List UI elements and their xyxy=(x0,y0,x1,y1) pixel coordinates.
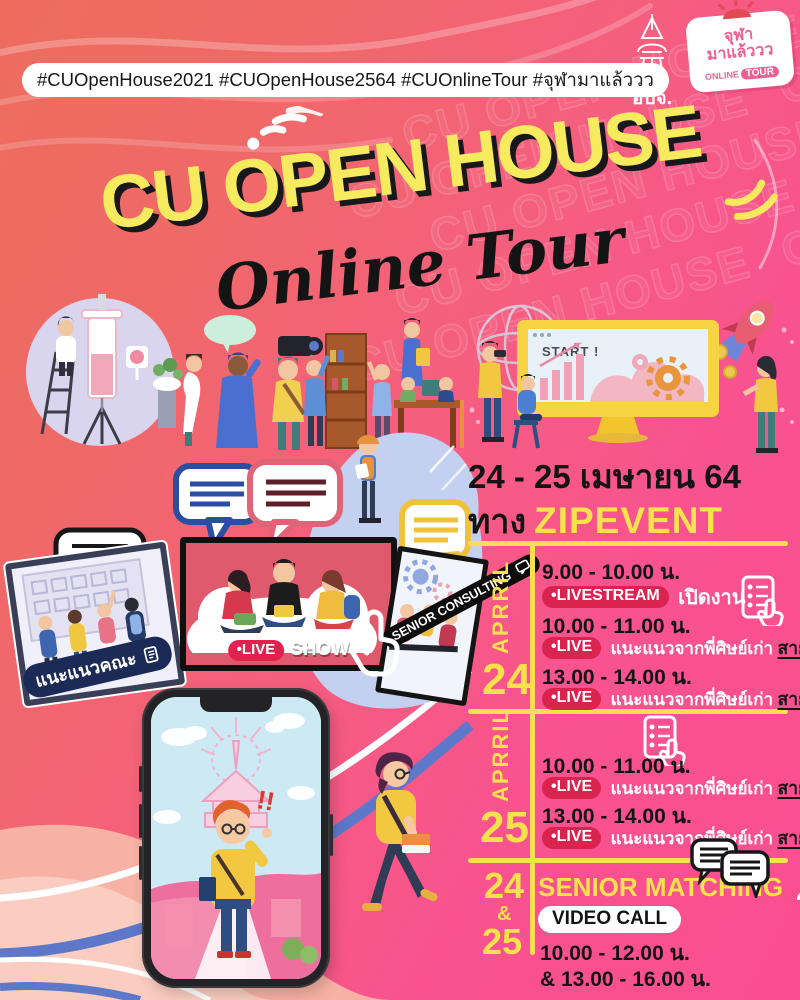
live-badge: •LIVE xyxy=(542,688,601,710)
stamp-online: ONLINE xyxy=(705,69,740,82)
day-number-25: 25 xyxy=(480,806,529,850)
live-badge: •LIVE xyxy=(542,777,601,799)
phone-button xyxy=(139,766,142,792)
desktop-monitor: START ! xyxy=(517,320,719,443)
event-channel: ทางZIPEVENT xyxy=(468,494,723,548)
checklist-hand-icon xyxy=(740,574,786,626)
live-badge: •LIVE xyxy=(542,827,601,849)
month-label-24: APRRIL xyxy=(488,562,514,654)
livestream-badge: •LIVESTREAM xyxy=(542,586,669,608)
schedule-entry: •LIVE แนะแนวจากพี่ศิษย์เก่า สายศิลป์ xyxy=(542,685,800,713)
entry-track: สายวิทย์ xyxy=(778,638,800,658)
matching-time-2: & 13.00 - 16.00 น. xyxy=(540,963,711,996)
stamp-tour: TOUR xyxy=(740,65,779,79)
monitor-screen-text: START ! xyxy=(542,344,599,359)
gesturing-woman-figure xyxy=(744,356,778,453)
phone-button xyxy=(139,804,142,838)
chat-mini-icon xyxy=(514,559,532,576)
coin-icon xyxy=(724,366,736,378)
chat-bubbles-icon xyxy=(690,836,770,898)
entry-track: สายศิลป์ xyxy=(778,778,800,798)
engineer-figure xyxy=(340,430,398,536)
crown-icon xyxy=(714,0,760,22)
bush xyxy=(300,946,318,964)
video-call-badge: VIDEO CALL xyxy=(538,906,681,933)
schedule-entry: •LIVE แนะแนวจากพี่ศิษย์เก่า สายวิทย์ xyxy=(542,634,800,662)
entry-desc: เปิดงาน xyxy=(678,587,745,609)
checklist-mini-icon xyxy=(143,645,161,665)
tower-icon xyxy=(628,12,676,80)
plant-researcher-figure xyxy=(153,354,202,446)
live-badge: •LIVE xyxy=(228,640,285,661)
entry-desc: แนะแนวจากพี่ศิษย์เก่า xyxy=(611,690,773,709)
entry-desc: แนะแนวจากพี่ศิษย์เก่า xyxy=(611,639,773,658)
live-show-badge-row: •LIVESHOW xyxy=(228,639,350,661)
phone-screen: !! xyxy=(151,697,321,979)
matching-day-24: 24 xyxy=(484,868,524,904)
tower-logo: อบจ. xyxy=(620,12,684,113)
entry-track: สายศิลป์ xyxy=(778,689,800,709)
speaker-figure xyxy=(204,315,262,448)
hashtag-bar: #CUOpenHouse2021 #CUOpenHouse2564 #CUOnl… xyxy=(22,63,669,97)
phone-screen-art: !! xyxy=(151,697,321,979)
walking-student-figure xyxy=(352,748,480,918)
live-badge: •LIVE xyxy=(542,637,601,659)
schedule-entry: •LIVESTREAM เปิดงาน xyxy=(542,581,745,613)
entry-track: สายวิทย์ xyxy=(778,828,800,848)
divider-vertical-line xyxy=(530,541,535,955)
booth xyxy=(165,905,193,947)
hand-cursor-icon xyxy=(350,606,408,684)
schedule-entry: •LIVE แนะแนวจากพี่ศิษย์เก่า สายศิลป์ xyxy=(542,774,800,802)
event-stamp-logo: จุฬา มาแล้ววว ONLINETOUR xyxy=(685,10,795,93)
phone-button xyxy=(139,846,142,880)
tower-logo-label: อบจ. xyxy=(620,83,684,113)
smartphone: !! xyxy=(142,688,330,988)
booth xyxy=(271,899,301,937)
channel-prefix: ทาง xyxy=(468,503,526,541)
matching-day-25: 25 xyxy=(482,924,522,960)
channel-name: ZIPEVENT xyxy=(534,500,723,541)
phone-button xyxy=(330,814,333,856)
person-icon xyxy=(795,876,800,900)
phone-notch xyxy=(200,697,272,712)
live-show-label: SHOW xyxy=(290,639,349,660)
monitor-illustration: START ! xyxy=(462,290,800,458)
day-number-24: 24 xyxy=(482,658,531,702)
poster-root: CU OPEN HOUSECU OPEN HOUSE CU OPEN HOUSE… xyxy=(0,0,800,1000)
month-label-25: APRRIL xyxy=(488,710,514,802)
entry-desc: แนะแนวจากพี่ศิษย์เก่า xyxy=(611,779,773,798)
